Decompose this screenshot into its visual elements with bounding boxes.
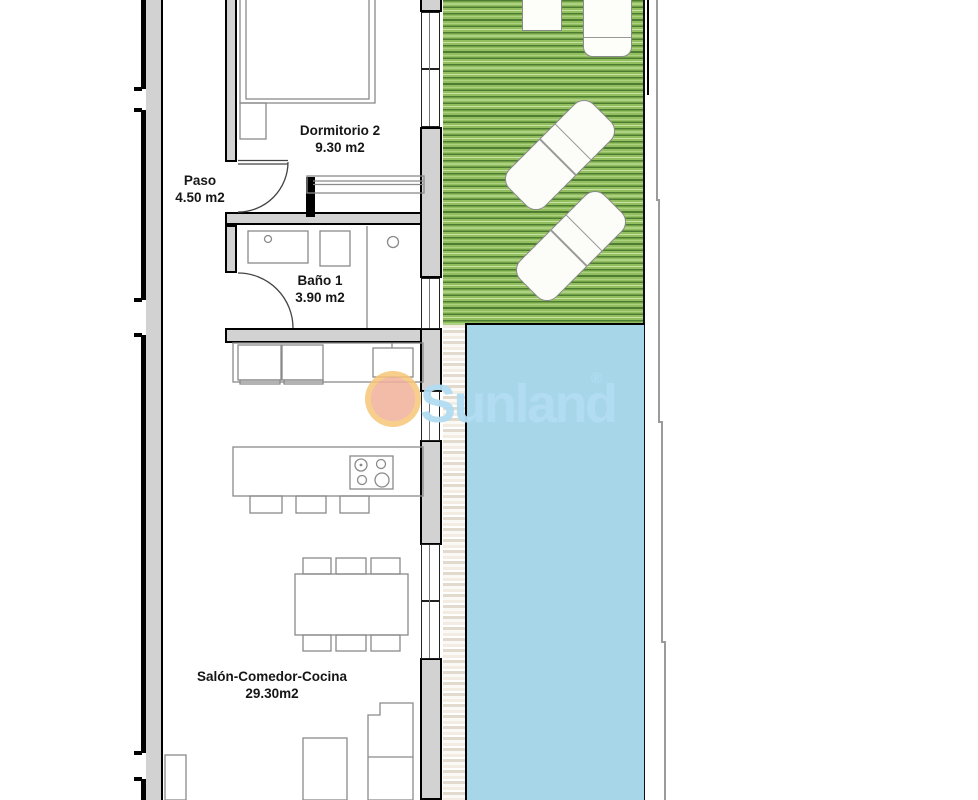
- tv-unit: [165, 755, 186, 800]
- room-name: Paso: [175, 172, 225, 189]
- wardrobe: [307, 176, 424, 193]
- sunland-sun-icon: [365, 371, 421, 427]
- sunland-logo-text: Sunland: [420, 377, 616, 431]
- door-dormitorio: [238, 161, 288, 213]
- floor-plan-canvas: Dormitorio 2 9.30 m2 Paso 4.50 m2 Baño 1…: [0, 0, 978, 800]
- room-label-bano1: Baño 1 3.90 m2: [295, 272, 345, 306]
- nightstand: [240, 103, 266, 139]
- registered-trademark-icon: ®: [591, 370, 602, 387]
- room-label-paso: Paso 4.50 m2: [175, 172, 225, 206]
- room-label-dormitorio2: Dormitorio 2 9.30 m2: [300, 122, 380, 156]
- room-area: 9.30 m2: [300, 139, 380, 156]
- dining-set: [295, 558, 408, 651]
- room-label-salon: Salón-Comedor-Cocina 29.30m2: [197, 668, 347, 702]
- room-name: Dormitorio 2: [300, 122, 380, 139]
- door-bathroom: [238, 273, 293, 328]
- coffee-table: [303, 738, 347, 800]
- kitchen-island: [233, 447, 423, 513]
- room-area: 29.30m2: [197, 685, 347, 702]
- room-area: 3.90 m2: [295, 289, 345, 306]
- room-name: Baño 1: [295, 272, 345, 289]
- sofa: [368, 703, 413, 800]
- room-name: Salón-Comedor-Cocina: [197, 668, 347, 685]
- room-area: 4.50 m2: [175, 189, 225, 206]
- bed: [240, 0, 375, 103]
